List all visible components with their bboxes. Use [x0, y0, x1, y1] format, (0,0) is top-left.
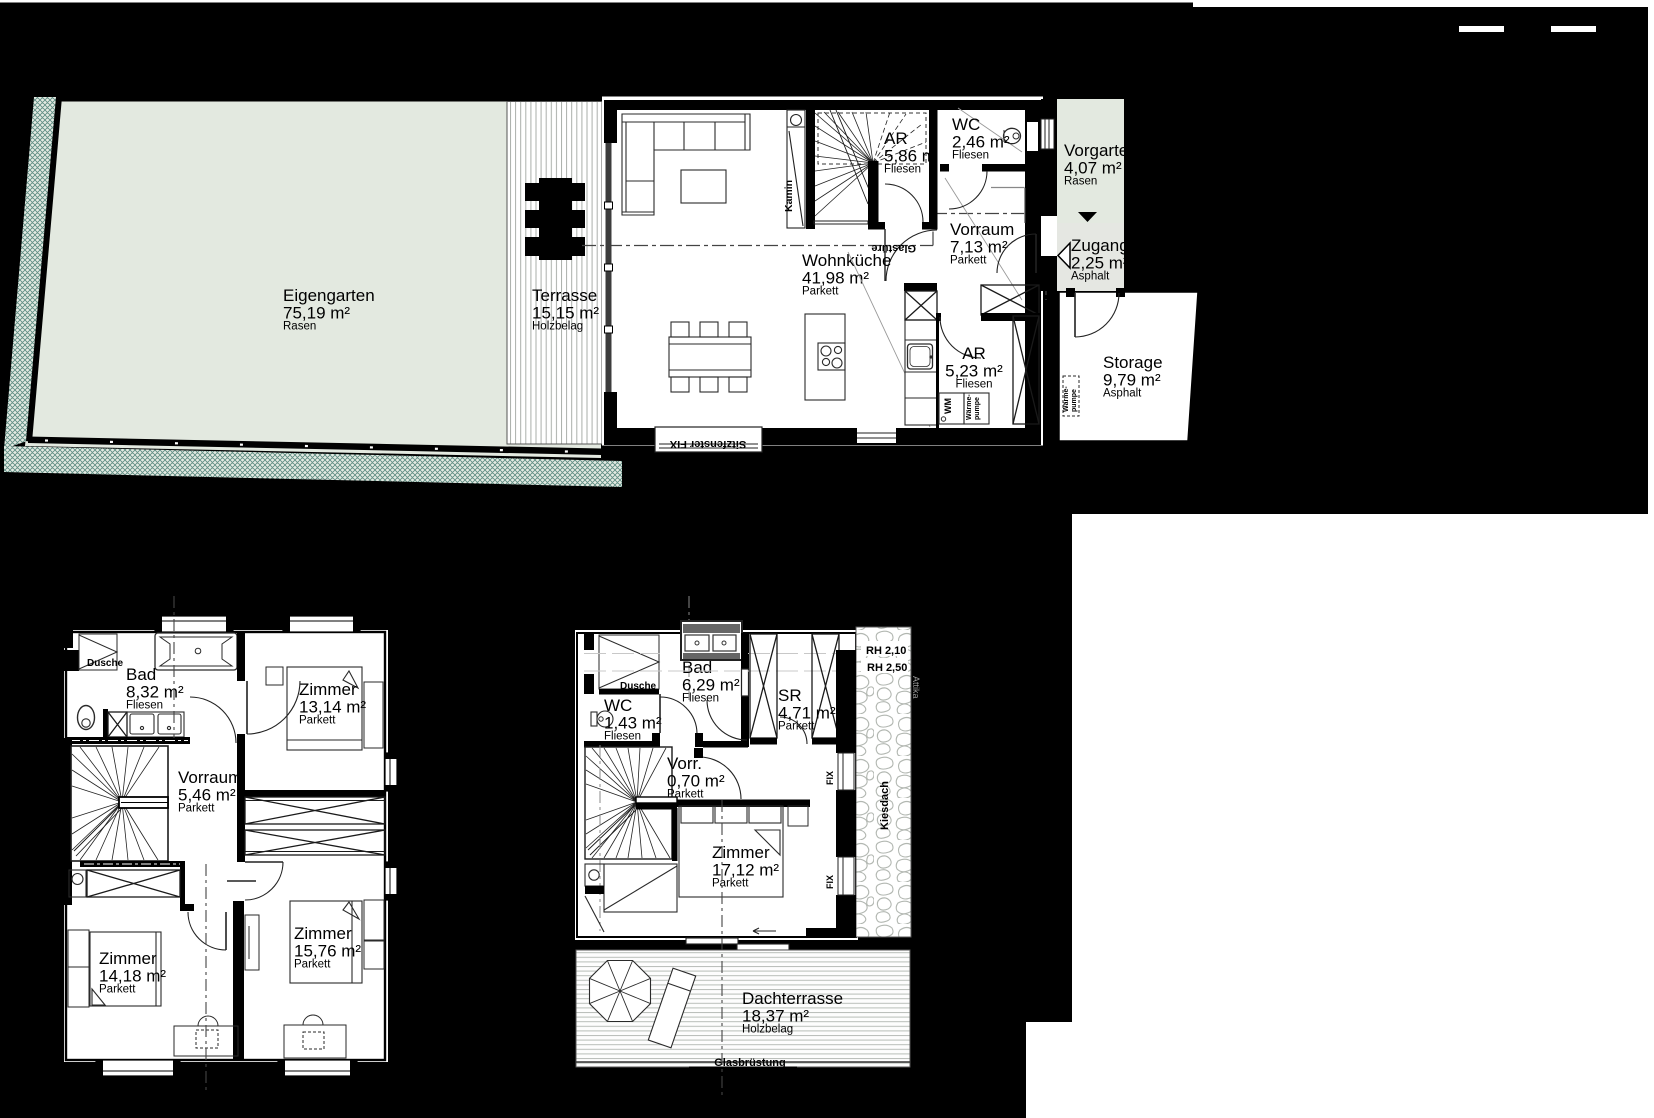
- svg-text:Wohnküche: Wohnküche: [802, 251, 891, 270]
- svg-text:Zimmer: Zimmer: [294, 924, 352, 943]
- svg-text:RH 2,10: RH 2,10: [866, 645, 906, 657]
- svg-text:Parkett: Parkett: [99, 984, 136, 996]
- svg-text:WM: WM: [943, 398, 953, 414]
- svg-text:WC: WC: [604, 696, 632, 715]
- svg-text:Fliesen: Fliesen: [604, 731, 641, 743]
- svg-text:Attika: Attika: [911, 676, 921, 699]
- svg-text:Bad: Bad: [682, 658, 712, 677]
- svg-text:AR: AR: [962, 344, 986, 363]
- svg-text:Zimmer: Zimmer: [299, 680, 357, 699]
- svg-text:Parkett: Parkett: [712, 878, 749, 890]
- svg-text:Holzbelag: Holzbelag: [742, 1024, 793, 1036]
- svg-text:Kiesdach: Kiesdach: [879, 781, 891, 830]
- svg-text:Parkett: Parkett: [294, 959, 331, 971]
- svg-text:Fliesen: Fliesen: [884, 164, 921, 176]
- svg-text:Fliesen: Fliesen: [126, 700, 163, 712]
- svg-text:Fliesen: Fliesen: [682, 693, 719, 705]
- svg-text:Zugang: Zugang: [1071, 236, 1129, 255]
- svg-text:Fliesen: Fliesen: [952, 150, 989, 162]
- svg-text:Parkett: Parkett: [299, 715, 336, 727]
- svg-text:pumpe: pumpe: [974, 397, 981, 420]
- svg-text:Parkett: Parkett: [802, 286, 839, 298]
- svg-text:Eigengarten: Eigengarten: [283, 286, 375, 305]
- svg-text:Parkett: Parkett: [778, 721, 815, 733]
- svg-text:Asphalt: Asphalt: [1103, 388, 1142, 400]
- svg-text:Terrasse: Terrasse: [532, 286, 597, 305]
- svg-text:FIX: FIX: [825, 875, 835, 889]
- svg-text:WC: WC: [952, 115, 980, 134]
- svg-text:Storage: Storage: [1103, 353, 1163, 372]
- svg-text:Bad: Bad: [126, 665, 156, 684]
- svg-text:Zimmer: Zimmer: [712, 843, 770, 862]
- svg-text:Wärme-: Wärme-: [966, 394, 973, 420]
- svg-text:AR: AR: [884, 129, 908, 148]
- svg-text:Parkett: Parkett: [667, 789, 704, 801]
- svg-text:Zimmer: Zimmer: [99, 949, 157, 968]
- svg-text:Parkett: Parkett: [178, 803, 215, 815]
- svg-text:Rasen: Rasen: [283, 321, 316, 333]
- svg-text:Kamin: Kamin: [783, 180, 795, 212]
- svg-text:pumpe: pumpe: [1071, 389, 1078, 412]
- svg-text:Vorraum: Vorraum: [950, 220, 1014, 239]
- svg-text:Parkett: Parkett: [950, 255, 987, 267]
- svg-text:SR: SR: [778, 686, 802, 705]
- svg-text:Dusche: Dusche: [87, 658, 124, 669]
- svg-text:RH 2,50: RH 2,50: [867, 662, 907, 674]
- svg-text:Wärme-: Wärme-: [1063, 386, 1070, 412]
- svg-text:Vorraum: Vorraum: [178, 768, 242, 787]
- svg-text:Asphalt: Asphalt: [1071, 271, 1110, 283]
- svg-text:Sitzfenster FIX: Sitzfenster FIX: [669, 438, 746, 450]
- svg-text:Holzbelag: Holzbelag: [532, 321, 583, 333]
- svg-text:FIX: FIX: [825, 771, 835, 785]
- svg-text:Fliesen: Fliesen: [955, 379, 992, 391]
- svg-text:Dachterrasse: Dachterrasse: [742, 989, 843, 1008]
- svg-text:Rasen: Rasen: [1064, 176, 1097, 188]
